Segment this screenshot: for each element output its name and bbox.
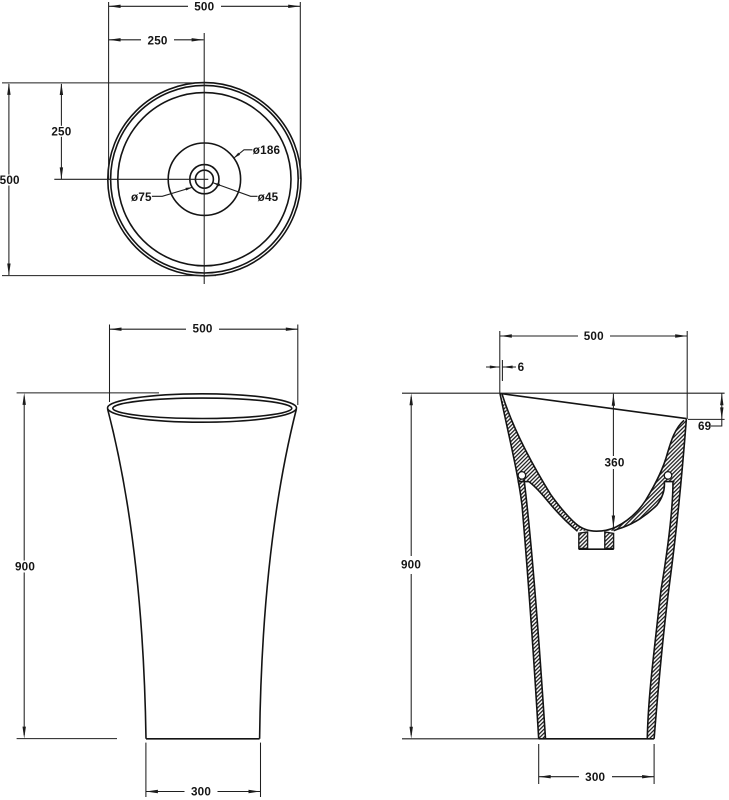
svg-text:500: 500 [193, 323, 213, 336]
svg-text:ø45: ø45 [258, 191, 279, 204]
svg-text:500: 500 [194, 1, 214, 14]
svg-text:300: 300 [191, 786, 211, 799]
svg-text:ø186: ø186 [253, 144, 281, 157]
svg-text:500: 500 [0, 174, 20, 187]
svg-text:300: 300 [585, 771, 605, 784]
svg-text:69: 69 [698, 420, 712, 433]
svg-text:900: 900 [15, 561, 35, 574]
svg-text:6: 6 [518, 361, 525, 374]
svg-text:500: 500 [584, 330, 604, 343]
svg-text:ø75: ø75 [131, 191, 152, 204]
svg-text:250: 250 [148, 35, 168, 48]
svg-text:360: 360 [604, 457, 624, 470]
svg-text:250: 250 [51, 125, 71, 138]
svg-text:900: 900 [401, 559, 421, 572]
